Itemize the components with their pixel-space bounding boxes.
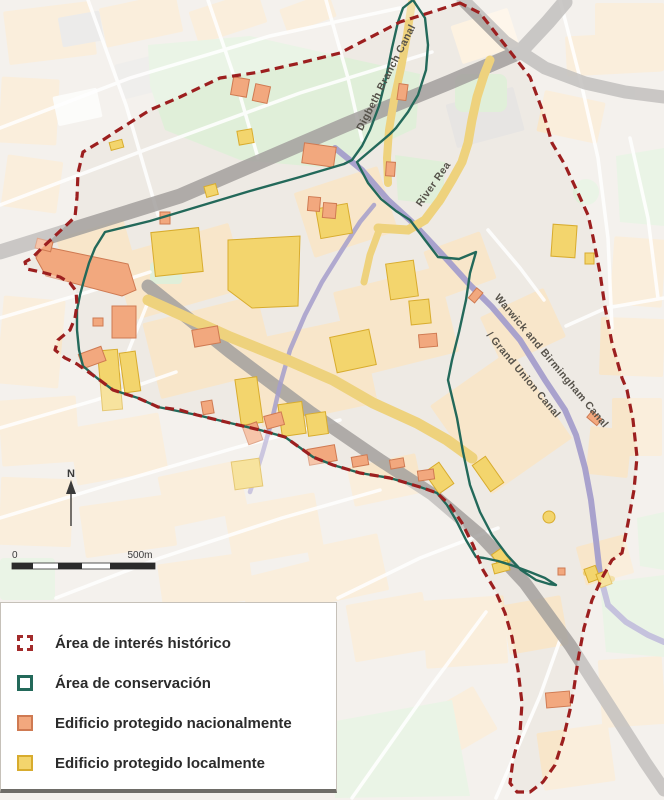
legend-item-label: Área de interés histórico — [55, 635, 231, 652]
north-label: N — [67, 468, 75, 480]
legend-item-label: Área de conservación — [55, 675, 211, 692]
legend-item-historic-area: Área de interés histórico — [17, 623, 336, 663]
map-screenshot: Digbeth Branch Canal River Rea Warwick a… — [0, 0, 664, 800]
scale-end-label: 500m — [127, 550, 152, 561]
scale-start-label: 0 — [12, 550, 18, 561]
map-legend: Área de interés histórico Área de conser… — [0, 602, 337, 793]
legend-item-label: Edificio protegido localmente — [55, 755, 265, 772]
legend-item-local-building: Edificio protegido localmente — [17, 743, 336, 783]
local-building-swatch-icon — [17, 755, 33, 771]
national-building-swatch-icon — [17, 715, 33, 731]
legend-item-national-building: Edificio protegido nacionalmente — [17, 703, 336, 743]
legend-item-conservation-area: Área de conservación — [17, 663, 336, 703]
conservation-area-swatch-icon — [17, 675, 33, 691]
legend-item-label: Edificio protegido nacionalmente — [55, 715, 292, 732]
historic-area-swatch-icon — [17, 635, 33, 651]
